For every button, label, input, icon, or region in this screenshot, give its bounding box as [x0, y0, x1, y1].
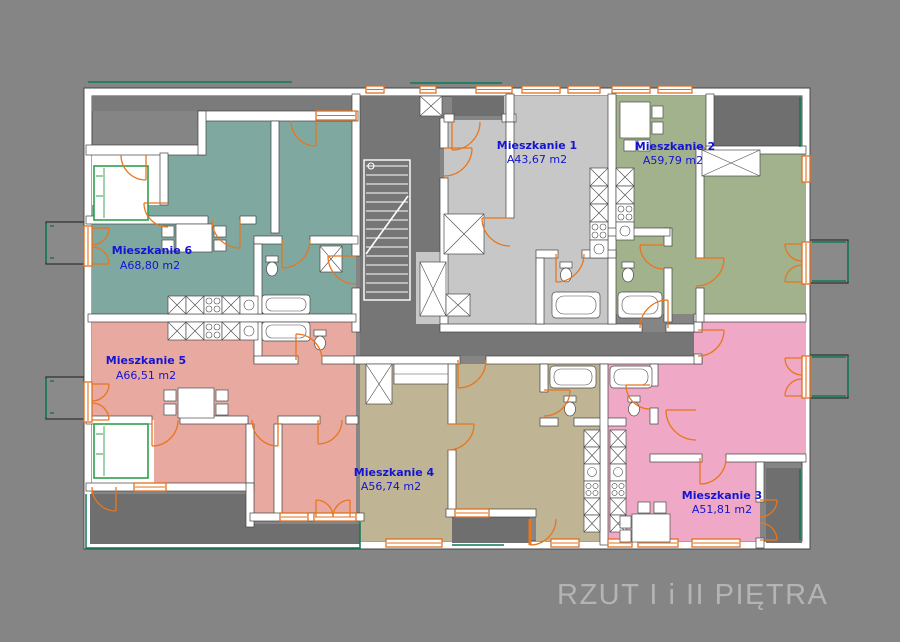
terrace-bottom-left: [250, 524, 360, 544]
bathtub: [618, 292, 662, 318]
toilet: [314, 330, 326, 350]
window: [692, 539, 740, 547]
toilet: [560, 262, 572, 282]
bathtub: [262, 322, 310, 341]
balcony-door-frame: [802, 356, 810, 398]
apartment-2-area: A59,79 m2: [643, 154, 703, 167]
apartment-1-area: A43,67 m2: [507, 153, 567, 166]
bed: [94, 166, 148, 220]
bathtub: [550, 366, 596, 388]
toilet: [266, 256, 278, 276]
wardrobe: [446, 294, 470, 316]
kitchen-counter: [168, 296, 258, 314]
window: [476, 86, 512, 93]
balcony-right-upper: [810, 240, 848, 283]
window: [455, 509, 489, 517]
window: [522, 86, 560, 93]
wardrobe: [702, 150, 760, 176]
kitchen-counter: [168, 322, 258, 340]
window: [366, 86, 384, 93]
central-corridor: [360, 332, 694, 356]
window: [134, 483, 166, 491]
shelf: [394, 364, 448, 384]
entrance-recess-bottom: [452, 517, 530, 543]
kitchen-counter: [584, 430, 600, 532]
apartment-5-area: A66,51 m2: [116, 369, 176, 382]
floor-plan-page: Mieszkanie 1 A43,67 m2 Mieszkanie 2 A59,…: [0, 0, 900, 642]
apartment-4-area: A56,74 m2: [361, 480, 421, 493]
drawing-title: RZUT I i II PIĘTRA: [557, 579, 828, 611]
bathtub: [262, 295, 310, 314]
loggia-bottom-right: [766, 468, 802, 543]
shaft: [420, 96, 442, 116]
apartment-1-name: Mieszkanie 1: [497, 139, 577, 152]
bed: [94, 424, 148, 478]
window: [612, 86, 650, 93]
window: [386, 539, 442, 547]
entrance-recess-top: [452, 96, 508, 116]
window: [316, 111, 356, 120]
apartment-2-name: Mieszkanie 2: [635, 140, 715, 153]
window: [802, 156, 810, 182]
apartment-3-area: A51,81 m2: [692, 503, 752, 516]
balcony-right-lower: [810, 355, 848, 398]
window: [551, 539, 579, 547]
balcony-door-frame: [84, 226, 92, 266]
wardrobe: [420, 262, 446, 316]
apartment-5-name: Mieszkanie 5: [106, 354, 186, 367]
apartment-3-name: Mieszkanie 3: [682, 489, 762, 502]
elevator: [444, 214, 484, 254]
window: [280, 513, 308, 521]
apartment-6-area: A68,80 m2: [120, 259, 180, 272]
window: [568, 86, 600, 93]
bathtub: [552, 292, 600, 318]
terrace-bottom-left: [90, 494, 250, 544]
balcony-door-frame: [84, 382, 92, 422]
window: [658, 86, 692, 93]
balcony-door-frame: [802, 242, 810, 284]
toilet: [564, 396, 576, 416]
window: [420, 86, 436, 93]
floor-plan-canvas: Mieszkanie 1 A43,67 m2 Mieszkanie 2 A59,…: [0, 0, 900, 642]
wardrobe: [366, 364, 392, 404]
loggia-top-right: [712, 96, 802, 148]
apartment-6-name: Mieszkanie 6: [112, 244, 193, 257]
top-left-setback: [92, 96, 356, 111]
toilet: [622, 262, 634, 282]
kitchen-counter: [616, 168, 634, 240]
kitchen-counter: [590, 168, 608, 258]
apartment-4-name: Mieszkanie 4: [354, 466, 435, 479]
